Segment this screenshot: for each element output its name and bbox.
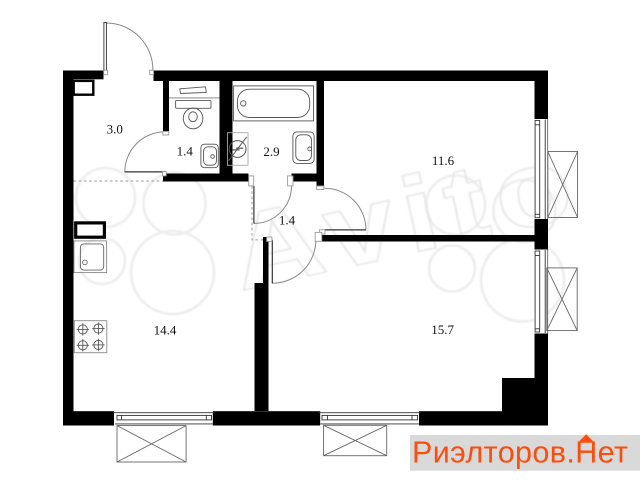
- svg-text:Риэлторов.Нет: Риэлторов.Нет: [412, 436, 628, 470]
- svg-text:1.4: 1.4: [279, 212, 296, 227]
- svg-text:11.6: 11.6: [432, 153, 455, 168]
- svg-text:15.7: 15.7: [431, 322, 454, 337]
- svg-text:14.4: 14.4: [154, 323, 177, 338]
- svg-text:3.0: 3.0: [107, 122, 123, 137]
- svg-text:1.4: 1.4: [177, 144, 194, 159]
- svg-text:2.9: 2.9: [263, 144, 279, 159]
